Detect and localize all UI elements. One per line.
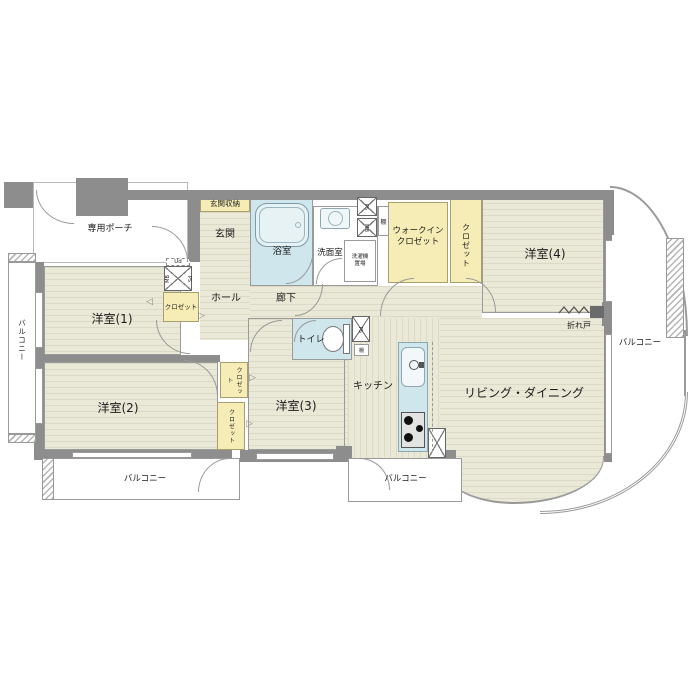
closet-door-mark: ▷ bbox=[249, 374, 256, 383]
balcony-right-label: バルコニー bbox=[612, 336, 668, 348]
window-room3-bottom bbox=[256, 453, 334, 460]
room1-label: 洋室(1) bbox=[70, 311, 154, 326]
walk-in-closet-label: ウォークイン クロゼット bbox=[388, 224, 448, 250]
pipe-space-label: PS bbox=[363, 204, 369, 210]
closet-door-mark: ◁ bbox=[146, 298, 153, 307]
laundry-label-line1: 洗濯機 bbox=[352, 254, 369, 261]
walk-in-closet-label-line1: ウォークイン bbox=[392, 226, 443, 237]
pipe-space-box-washroom: PS bbox=[357, 197, 377, 216]
closet-room2a-label: クロゼット bbox=[226, 364, 242, 397]
balcony-left-divider-top bbox=[8, 253, 36, 262]
entrance-storage-label: 玄関収納 bbox=[200, 196, 250, 210]
pipe-space-box-kitchen bbox=[428, 428, 446, 458]
kitchen-counter-edge bbox=[432, 342, 433, 452]
entrance-label: 玄関 bbox=[202, 226, 248, 239]
meter-box-label: MB bbox=[165, 275, 171, 283]
balcony-bottom-left-label: バルコニー bbox=[95, 472, 195, 484]
washbasin bbox=[320, 208, 350, 229]
room3-label: 洋室(3) bbox=[254, 398, 338, 413]
window-room2-left bbox=[35, 368, 43, 424]
balcony-right-rail bbox=[684, 330, 686, 396]
laundry-label-line2: 置場 bbox=[354, 261, 365, 268]
kitchen-label: キッチン bbox=[350, 378, 396, 391]
shelf-box-toilet: 棚 bbox=[354, 344, 369, 356]
closet-door-mark: ▷ bbox=[198, 312, 205, 321]
pipe-space-label: PS bbox=[357, 327, 363, 333]
meter-pipe-box-entrance: MB PS bbox=[164, 266, 192, 291]
wall-porch-block-b bbox=[76, 178, 128, 216]
meter-box-label: MB bbox=[363, 224, 369, 232]
closet-room4-label: クロゼット bbox=[458, 215, 474, 275]
private-porch-label: 専用ポーチ bbox=[70, 221, 150, 234]
folding-door-label: 折れ戸 bbox=[558, 320, 600, 331]
closet-room2b-label: クロゼット bbox=[223, 406, 239, 446]
balcony-bottom-right-label: バルコニー bbox=[358, 472, 453, 484]
pipe-space-box-toilet: PS bbox=[352, 316, 370, 342]
hall-label: ホール bbox=[200, 290, 252, 302]
shelf-label: 棚 bbox=[359, 347, 364, 354]
walk-in-closet-label-line2: クロゼット bbox=[397, 237, 440, 248]
wall-porch-entrance bbox=[188, 196, 200, 262]
balcony-bottom-left-divider bbox=[42, 458, 54, 500]
closet-door-mark: ▷ bbox=[246, 420, 253, 429]
toilet-label: トイレ bbox=[296, 332, 326, 344]
kitchen-sink bbox=[401, 347, 425, 387]
door-arc-walk-in-closet bbox=[380, 278, 414, 316]
room2-label: 洋室(2) bbox=[76, 400, 160, 415]
pipe-space-label: PS bbox=[186, 276, 192, 282]
laundry-box: 洗濯機 置場 bbox=[344, 240, 376, 282]
shelf-label: 棚 bbox=[380, 217, 386, 226]
bathroom-label: 浴室 bbox=[262, 243, 302, 256]
washroom-label: 洗面室 bbox=[312, 246, 348, 258]
wall-porch-block-a bbox=[4, 182, 33, 208]
toilet-tank bbox=[343, 324, 350, 354]
folding-door-end-block bbox=[590, 306, 604, 318]
corridor-label: 廊下 bbox=[262, 290, 310, 302]
closet-room1-label: クロゼット bbox=[163, 300, 199, 312]
floorplan-canvas: MB PS Ud PS MB 棚 洗濯機 置場 PS 棚 bbox=[0, 0, 690, 690]
meter-box-washroom: MB bbox=[357, 218, 377, 237]
folding-door-symbol bbox=[558, 304, 592, 316]
bathtub bbox=[255, 203, 309, 247]
balcony-right-curve-bottom bbox=[540, 392, 688, 514]
balcony-left-label: バルコニー bbox=[13, 300, 31, 380]
kitchen-stove bbox=[401, 412, 425, 448]
window-room1-left bbox=[35, 292, 43, 348]
balcony-right-partition bbox=[666, 238, 684, 338]
living-dining-label: リビング・ダイニング bbox=[448, 385, 600, 400]
room4-label: 洋室(4) bbox=[490, 246, 600, 261]
balcony-left-divider-bottom bbox=[8, 434, 36, 443]
